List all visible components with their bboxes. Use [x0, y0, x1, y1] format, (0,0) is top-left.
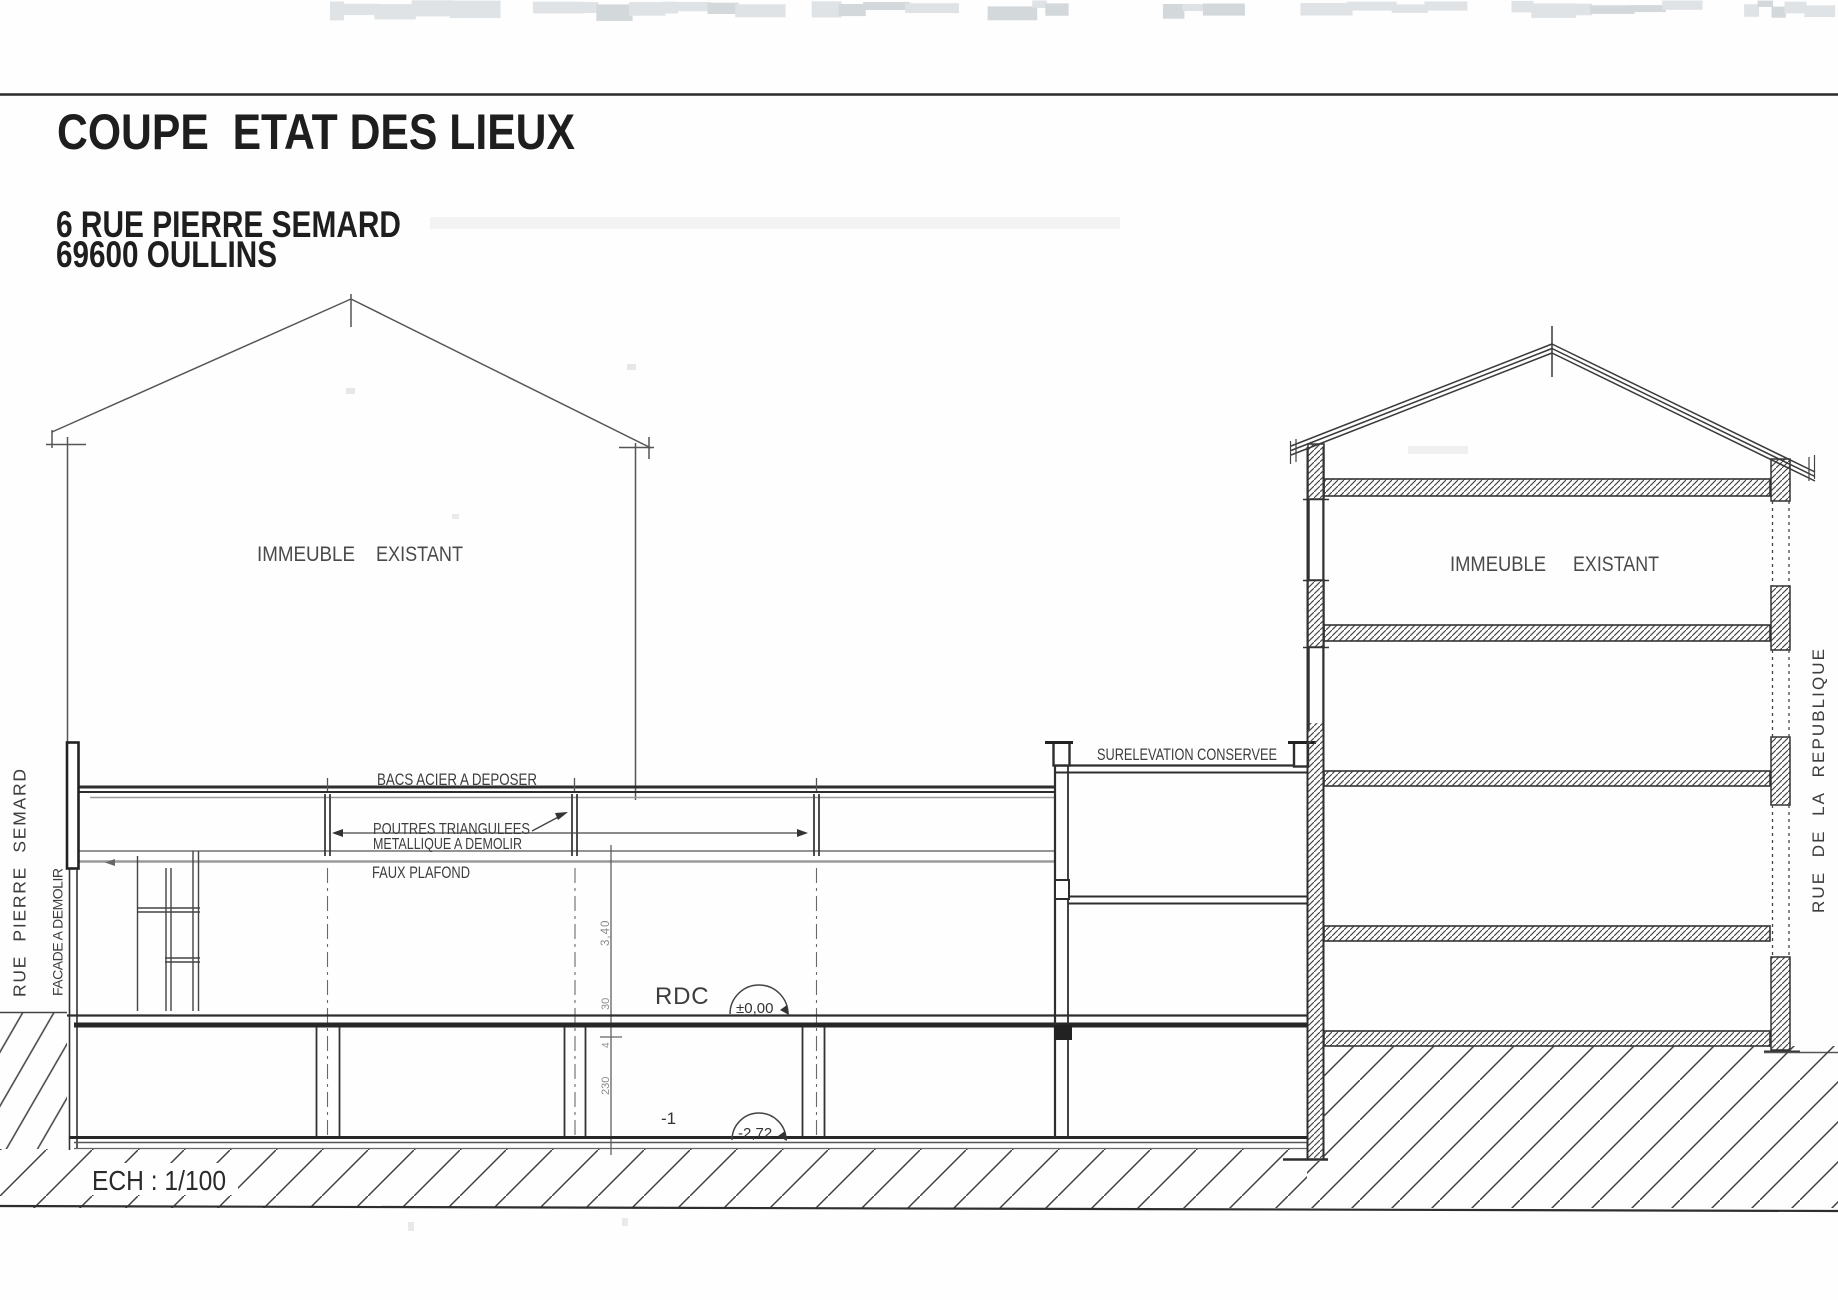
svg-text:EXISTANT: EXISTANT — [376, 543, 463, 566]
svg-text:COUPE ETAT DES LIEUX: COUPE ETAT DES LIEUX — [57, 104, 575, 160]
svg-text:±0,00: ±0,00 — [736, 1000, 773, 1017]
svg-text:ECH : 1/100: ECH : 1/100 — [92, 1165, 226, 1196]
svg-text:IMMEUBLE: IMMEUBLE — [1450, 553, 1546, 576]
svg-text:-2,72: -2,72 — [738, 1125, 772, 1142]
svg-text:69600 OULLINS: 69600 OULLINS — [56, 234, 277, 275]
svg-text:4: 4 — [601, 1042, 612, 1048]
svg-text:FACADE A DEMOLIR: FACADE A DEMOLIR — [50, 868, 66, 996]
svg-text:30: 30 — [600, 998, 612, 1010]
svg-text:SURELEVATION CONSERVEE: SURELEVATION CONSERVEE — [1097, 746, 1277, 764]
svg-text:-1: -1 — [661, 1109, 676, 1128]
svg-text:RUE DE LA REPUBLIQUE: RUE DE LA REPUBLIQUE — [1809, 649, 1828, 913]
svg-text:RUE PIERRE SEMARD: RUE PIERRE SEMARD — [10, 769, 30, 997]
svg-text:BACS ACIER A DEPOSER: BACS ACIER A DEPOSER — [377, 770, 537, 789]
svg-text:METALLIQUE A DEMOLIR: METALLIQUE A DEMOLIR — [373, 836, 522, 853]
svg-text:EXISTANT: EXISTANT — [1573, 553, 1659, 576]
svg-text:3,40: 3,40 — [600, 920, 612, 946]
svg-text:RDC: RDC — [655, 983, 709, 1010]
svg-text:230: 230 — [600, 1077, 612, 1095]
svg-text:IMMEUBLE: IMMEUBLE — [257, 543, 355, 566]
svg-text:FAUX PLAFOND: FAUX PLAFOND — [372, 864, 470, 882]
